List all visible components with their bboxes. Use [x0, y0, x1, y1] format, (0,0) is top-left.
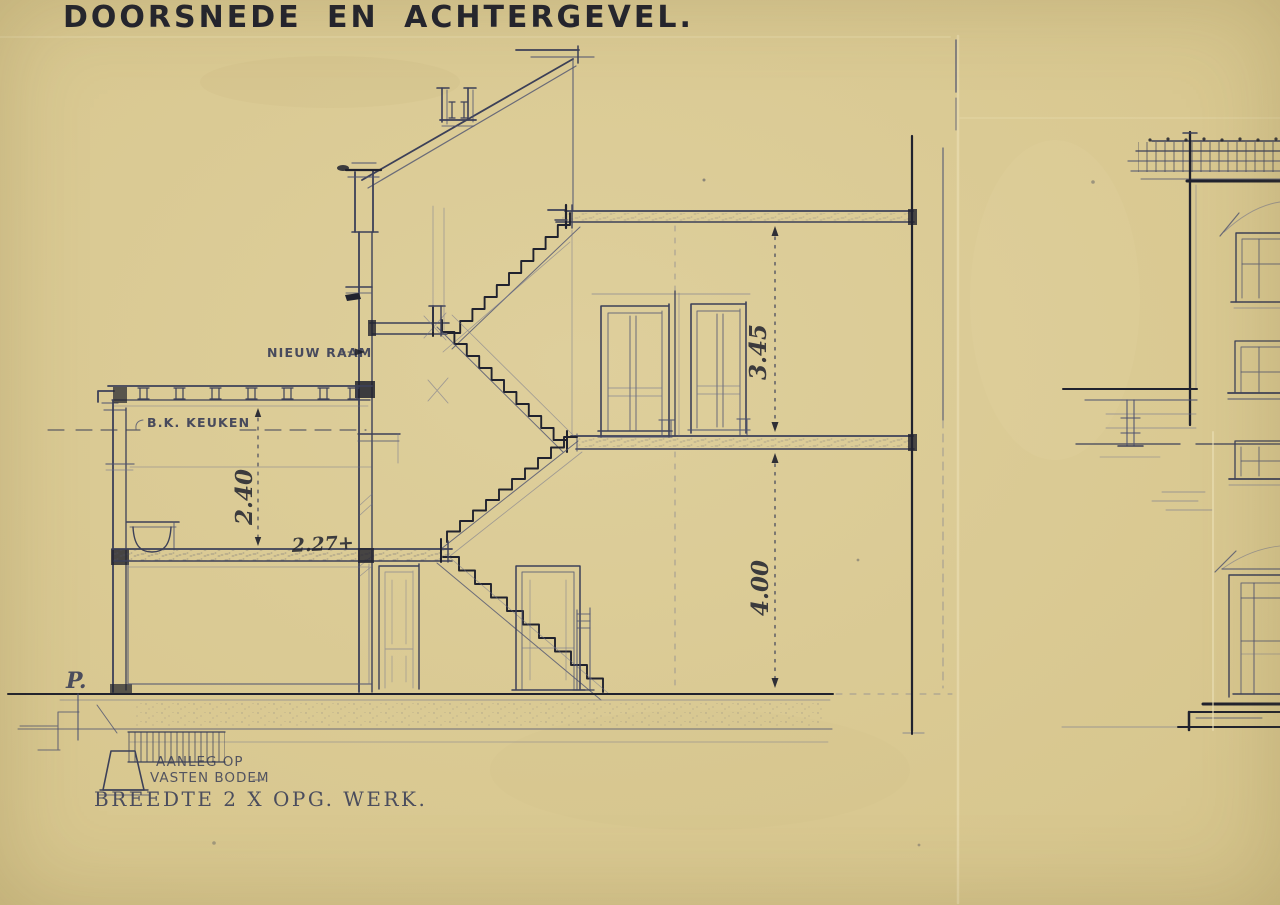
drawing-canvas: DOORSNEDE EN ACHTERGEVEL. [0, 0, 1280, 905]
paper-stains [200, 56, 1140, 846]
first-floor-windows [592, 291, 750, 437]
upper-floor [548, 205, 914, 432]
dimension-upper-storey: 3.45 [745, 226, 779, 432]
window-left [598, 304, 672, 437]
middle-floor [567, 431, 914, 690]
dim-3-45: 3.45 [745, 324, 772, 380]
cross-section: 2.40 2.27+ 3.45 4.00 NIEUW RAAM B.K. KEU… [8, 46, 952, 811]
label-breedte: BREEDTE 2 X OPG. WERK. [94, 787, 427, 811]
window-right [688, 302, 750, 433]
left-steps [20, 694, 117, 750]
ground-floor-doors [379, 564, 594, 690]
facade-window-2 [1228, 341, 1280, 399]
kitchen-extension [48, 386, 452, 694]
sink [127, 522, 179, 552]
label-bk-keuken: B.K. KEUKEN [147, 415, 250, 430]
roof-balustrade [1128, 137, 1280, 181]
annotations: NIEUW RAAM B.K. KEUKEN P. AANLEG OP VAST… [65, 345, 427, 811]
label-vasten-bodem: VASTEN BODEM [150, 770, 270, 786]
paper-corner-top-left [0, 0, 64, 19]
stair-flight-bottom [443, 557, 603, 692]
section-right-wall [903, 136, 943, 733]
facade-window-4 [1215, 546, 1280, 697]
stair-flight-top [448, 213, 570, 333]
title-block: DOORSNEDE EN ACHTERGEVEL. [63, 0, 694, 35]
dim-2-27: 2.27+ [290, 532, 354, 557]
stair-flight-3 [447, 437, 577, 542]
label-aanleg-op: AANLEG OP [156, 754, 244, 770]
staircase [429, 206, 608, 700]
door-stairwell [512, 566, 585, 690]
facade-window-3 [1229, 441, 1280, 485]
dim-4-00: 4.00 [747, 560, 774, 616]
label-p: P. [65, 668, 87, 694]
door-rear-wall [379, 564, 419, 689]
drawing-title: DOORSNEDE EN ACHTERGEVEL. [63, 0, 694, 35]
paper-corner-bottom-left [0, 893, 112, 905]
scan-shadow-bottom [112, 892, 1280, 905]
dimension-ground-storey: 4.00 [747, 453, 779, 688]
stair-flight-2 [442, 320, 566, 440]
facade-window-1 [1220, 202, 1280, 308]
blueprint-scan: DOORSNEDE EN ACHTERGEVEL. [0, 0, 1280, 905]
roof-joists [138, 388, 359, 399]
dim-2-40: 2.40 [231, 469, 258, 526]
